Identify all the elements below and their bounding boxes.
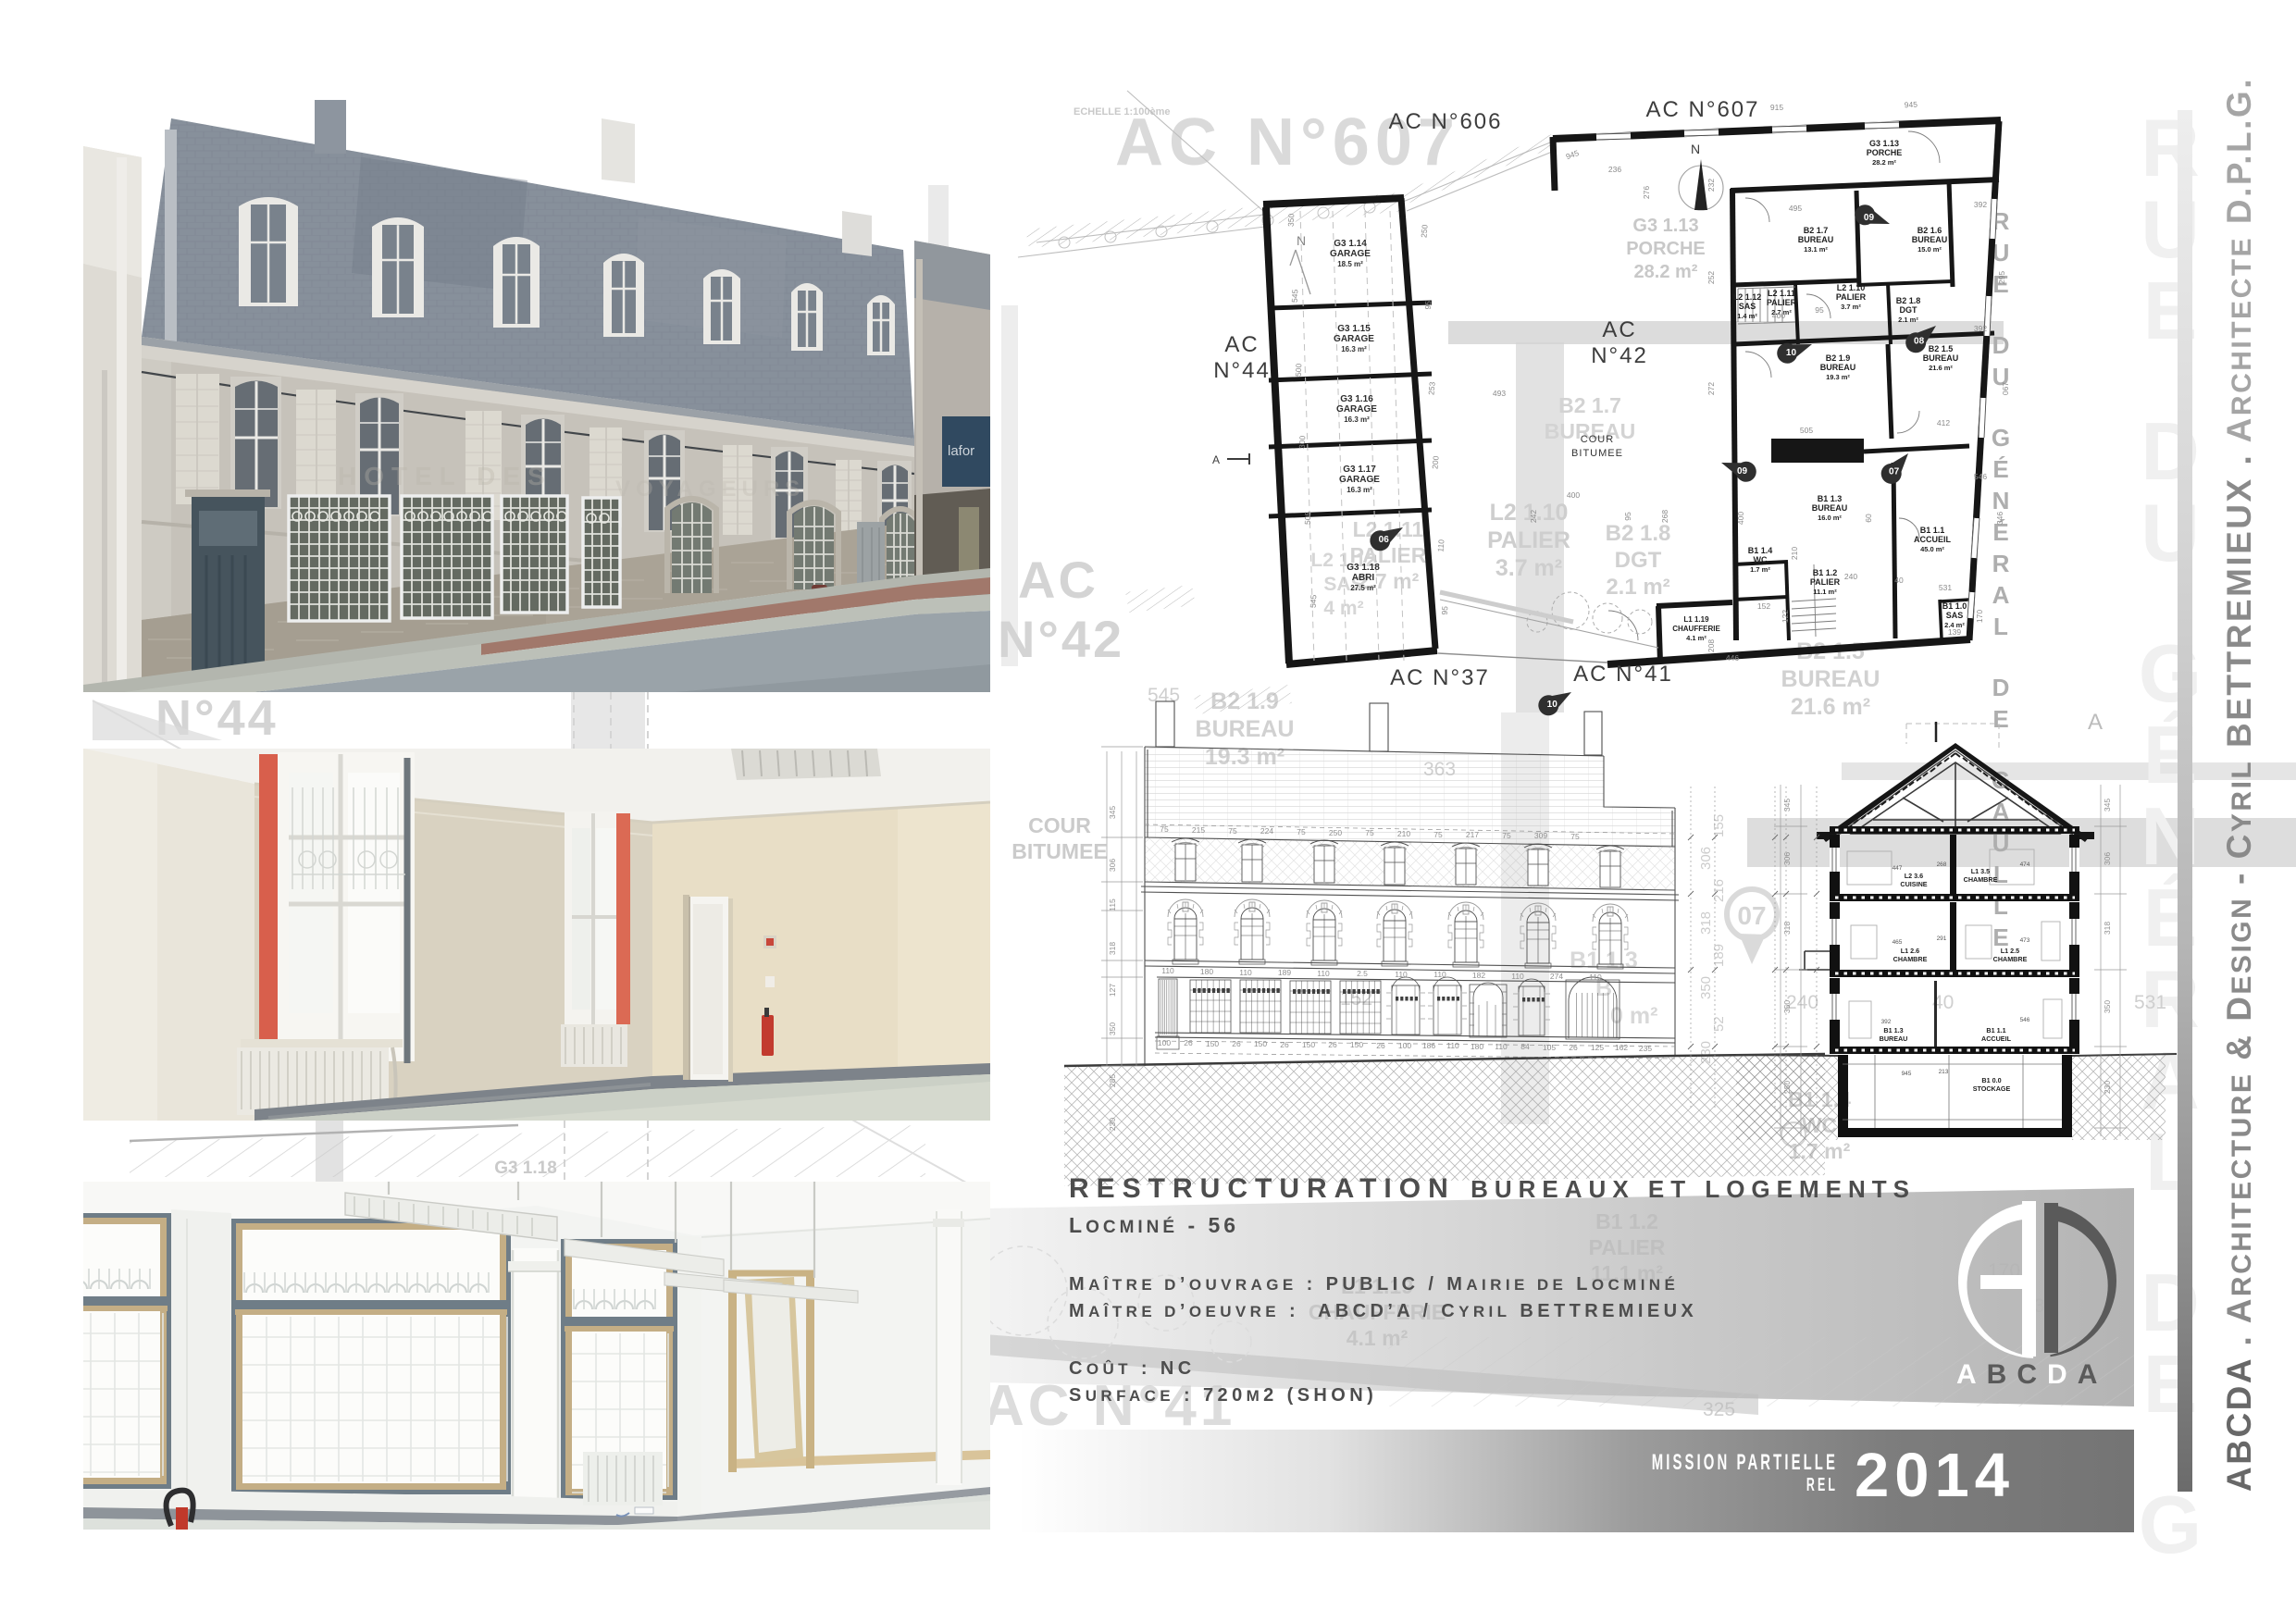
svg-text:3.7 m²: 3.7 m² [1841, 303, 1861, 311]
svg-text:AC N°37: AC N°37 [1390, 665, 1490, 690]
svg-text:A: A [2088, 710, 2103, 735]
svg-text:N: N [1691, 142, 1700, 156]
svg-text:CHAUFFERIE: CHAUFFERIE [1672, 625, 1720, 633]
svg-text:07: 07 [1889, 466, 1900, 477]
svg-text:L2 1.11: L2 1.11 [1768, 289, 1795, 298]
svg-text:CHAMBRE: CHAMBRE [1964, 875, 1998, 884]
svg-text:268: 268 [1937, 861, 1947, 868]
svg-text:276: 276 [1642, 186, 1651, 199]
svg-text:180: 180 [1200, 967, 1213, 976]
svg-text:G3 1.13: G3 1.13 [1632, 216, 1698, 236]
svg-text:13.1 m²: 13.1 m² [1804, 245, 1828, 254]
svg-text:L1 2.5: L1 2.5 [2001, 947, 2019, 955]
svg-text:274: 274 [1550, 972, 1563, 981]
svg-text:ABRI: ABRI [1352, 573, 1375, 583]
svg-text:75: 75 [1433, 830, 1443, 839]
svg-text:G3 1.14: G3 1.14 [1334, 239, 1367, 249]
svg-text:lafor: lafor [948, 443, 974, 459]
svg-text:A: A [1212, 453, 1220, 466]
svg-text:CHAMBRE: CHAMBRE [1993, 955, 2028, 963]
svg-text:10: 10 [1786, 348, 1797, 358]
svg-text:474: 474 [2020, 861, 2030, 868]
svg-text:250: 250 [1419, 224, 1429, 238]
svg-text:155: 155 [1711, 814, 1727, 837]
svg-text:224: 224 [1260, 826, 1273, 836]
svg-text:0 m²: 0 m² [1610, 1003, 1657, 1029]
svg-text:182: 182 [1472, 971, 1485, 980]
svg-text:75: 75 [1297, 827, 1306, 836]
svg-text:95: 95 [1623, 512, 1632, 521]
svg-text:210: 210 [1397, 829, 1410, 838]
svg-text:306: 306 [1698, 847, 1714, 870]
svg-text:100: 100 [1398, 1041, 1411, 1050]
svg-text:STOCKAGE: STOCKAGE [1973, 1084, 2011, 1093]
svg-text:189: 189 [1711, 944, 1727, 967]
svg-text:AC: AC [1224, 332, 1259, 357]
svg-text:84: 84 [1520, 1042, 1530, 1051]
svg-text:110: 110 [1435, 539, 1446, 552]
svg-text:306: 306 [1108, 859, 1117, 872]
svg-text:40: 40 [1894, 576, 1904, 585]
svg-text:PALIER: PALIER [1767, 298, 1797, 307]
svg-text:AC N°607: AC N°607 [1646, 97, 1760, 122]
svg-text:L2 1.12: L2 1.12 [1733, 292, 1762, 302]
svg-text:BUREAU: BUREAU [1923, 353, 1959, 363]
svg-text:493: 493 [1493, 389, 1506, 398]
svg-text:52: 52 [1711, 1016, 1727, 1032]
svg-text:242: 242 [1529, 510, 1538, 523]
svg-text:18.5 m²: 18.5 m² [1337, 260, 1363, 268]
svg-text:B1 1.1: B1 1.1 [1920, 526, 1945, 535]
svg-text:B2 1.9: B2 1.9 [1826, 353, 1851, 363]
svg-text:BUREAU: BUREAU [1196, 716, 1295, 742]
svg-text:PALIER: PALIER [1810, 577, 1841, 587]
svg-text:BUREAU: BUREAU [1912, 235, 1948, 244]
svg-text:505: 505 [1800, 426, 1813, 435]
svg-text:346: 346 [1995, 512, 2004, 525]
svg-text:16.0 m²: 16.0 m² [1818, 514, 1842, 522]
svg-text:B2 1.6: B2 1.6 [1917, 226, 1942, 235]
svg-text:110: 110 [1446, 1041, 1459, 1050]
svg-text:75: 75 [1228, 826, 1237, 836]
svg-text:B1 1.3: B1 1.3 [1818, 494, 1843, 503]
svg-text:505: 505 [1303, 511, 1313, 525]
svg-text:250: 250 [1329, 828, 1342, 837]
svg-text:B1 1.3: B1 1.3 [1570, 948, 1638, 973]
svg-text:B2 1.5: B2 1.5 [1929, 344, 1954, 353]
svg-text:G3 1.17: G3 1.17 [1343, 465, 1376, 475]
svg-text:232: 232 [1706, 179, 1716, 192]
svg-text:152: 152 [1757, 601, 1770, 611]
svg-text:95: 95 [1423, 300, 1433, 310]
svg-text:08: 08 [1914, 336, 1925, 346]
svg-text:B1 1.4: B1 1.4 [1748, 546, 1773, 555]
svg-text:BUREAU: BUREAU [1812, 503, 1848, 513]
svg-text:217: 217 [1466, 830, 1479, 839]
svg-text:400: 400 [1736, 512, 1745, 525]
svg-text:19.3 m²: 19.3 m² [1826, 373, 1850, 381]
svg-text:2.1 m²: 2.1 m² [1606, 575, 1669, 600]
svg-text:26: 26 [1232, 1039, 1241, 1048]
svg-text:306: 306 [2103, 852, 2112, 865]
svg-text:AC: AC [1602, 317, 1636, 342]
svg-text:B2 1.7: B2 1.7 [1558, 393, 1621, 417]
svg-text:291: 291 [1937, 935, 1947, 942]
svg-text:127: 127 [1108, 984, 1117, 997]
svg-text:400: 400 [1772, 311, 1785, 320]
svg-text:16.3 m²: 16.3 m² [1344, 415, 1370, 424]
svg-text:412: 412 [1937, 418, 1950, 427]
svg-text:236: 236 [1608, 165, 1621, 174]
svg-text:300: 300 [1297, 435, 1308, 449]
svg-text:B2 1.8: B2 1.8 [1606, 521, 1671, 546]
svg-text:531: 531 [1939, 583, 1952, 592]
svg-text:162: 162 [1615, 1043, 1628, 1052]
svg-text:150: 150 [1302, 1040, 1315, 1049]
svg-text:11.1 m²: 11.1 m² [1813, 588, 1837, 596]
svg-text:26: 26 [1280, 1040, 1289, 1049]
svg-text:125: 125 [1591, 1043, 1604, 1052]
svg-text:345: 345 [1782, 799, 1792, 811]
svg-text:ABCDA: ABCDA [1956, 1359, 2107, 1390]
svg-text:AC: AC [1018, 551, 1098, 609]
svg-text:27.5 m²: 27.5 m² [1350, 584, 1376, 592]
svg-text:09: 09 [1864, 213, 1875, 223]
svg-text:392: 392 [1974, 324, 1987, 333]
svg-text:945: 945 [1565, 148, 1581, 161]
svg-text:SAS: SAS [1946, 611, 1964, 620]
svg-text:B1 1.2: B1 1.2 [1813, 568, 1838, 577]
svg-text:G3 1.18: G3 1.18 [1347, 563, 1380, 573]
svg-text:L2 3.6: L2 3.6 [1905, 872, 1923, 880]
svg-text:350: 350 [1782, 1000, 1792, 1013]
svg-text:067: 067 [2001, 382, 2010, 395]
svg-text:GARAGE: GARAGE [1330, 249, 1371, 259]
svg-text:26: 26 [1184, 1038, 1193, 1047]
svg-text:BITUMEE: BITUMEE [1011, 839, 1108, 863]
svg-text:350: 350 [1698, 976, 1714, 999]
svg-text:D: D [1992, 674, 2010, 701]
svg-text:B1 1.0: B1 1.0 [1942, 601, 1967, 611]
svg-text:139: 139 [1948, 627, 1961, 637]
svg-text:350: 350 [1286, 213, 1297, 227]
svg-text:HOTEL DES: HOTEL DES [338, 462, 552, 490]
svg-text:110: 110 [1161, 966, 1174, 975]
svg-text:295: 295 [1997, 271, 2006, 284]
svg-text:16.3 m²: 16.3 m² [1347, 486, 1372, 494]
svg-text:A: A [1992, 581, 2010, 609]
svg-text:N°42: N°42 [998, 610, 1124, 668]
svg-text:21.6 m²: 21.6 m² [1791, 694, 1870, 720]
svg-text:GARAGE: GARAGE [1334, 334, 1374, 344]
svg-text:240: 240 [1844, 572, 1857, 581]
svg-text:GARAGE: GARAGE [1339, 475, 1380, 485]
svg-text:400: 400 [1567, 490, 1580, 500]
svg-text:210: 210 [1790, 547, 1799, 560]
svg-text:AC N°41: AC N°41 [1573, 662, 1673, 687]
svg-text:150: 150 [1350, 1040, 1363, 1049]
svg-text:L1 2.6: L1 2.6 [1901, 947, 1919, 955]
svg-text:268: 268 [1660, 510, 1669, 523]
svg-text:G: G [1992, 424, 2010, 452]
svg-text:PALIER: PALIER [1487, 527, 1570, 553]
svg-text:110: 110 [1239, 968, 1252, 977]
svg-text:306: 306 [1782, 852, 1792, 865]
svg-text:110: 110 [1589, 973, 1602, 982]
svg-text:100: 100 [1158, 1038, 1171, 1047]
svg-text:531: 531 [2134, 992, 2166, 1013]
svg-text:546: 546 [2020, 1017, 2030, 1023]
svg-text:BUREAU: BUREAU [1798, 235, 1834, 244]
svg-text:L1 1.19: L1 1.19 [1683, 615, 1709, 624]
svg-text:230: 230 [1782, 1081, 1792, 1094]
svg-text:GARAGE: GARAGE [1336, 404, 1377, 415]
svg-text:28.2 m²: 28.2 m² [1872, 158, 1896, 167]
svg-text:4.1 m²: 4.1 m² [1686, 634, 1706, 642]
svg-text:BUREAU: BUREAU [1820, 363, 1856, 372]
svg-text:B2 1.7: B2 1.7 [1804, 226, 1829, 235]
svg-text:235: 235 [1639, 1044, 1652, 1053]
svg-text:110: 110 [1317, 969, 1330, 978]
svg-text:E: E [1992, 705, 2008, 733]
svg-text:1.7 m²: 1.7 m² [1750, 565, 1770, 574]
svg-text:189: 189 [1278, 968, 1291, 977]
svg-text:200: 200 [1430, 455, 1440, 469]
svg-text:B1 1.1: B1 1.1 [1986, 1026, 2005, 1035]
svg-text:ACCUEIL: ACCUEIL [1981, 1035, 2012, 1043]
svg-text:95: 95 [1440, 605, 1450, 615]
svg-text:215: 215 [1192, 825, 1205, 835]
svg-text:PALIER: PALIER [1836, 292, 1867, 302]
svg-text:150: 150 [1254, 1039, 1267, 1048]
svg-text:16.3 m²: 16.3 m² [1341, 345, 1367, 353]
svg-text:318: 318 [1782, 922, 1792, 935]
svg-text:75: 75 [1570, 832, 1580, 841]
svg-text:216: 216 [1711, 879, 1727, 902]
svg-text:272: 272 [1706, 382, 1716, 395]
svg-text:B2 1.8: B2 1.8 [1896, 296, 1921, 305]
svg-text:06: 06 [1379, 535, 1390, 545]
svg-text:3.7 m²: 3.7 m² [1496, 555, 1562, 581]
svg-text:PORCHE: PORCHE [1867, 148, 1903, 157]
svg-text:28.2 m²: 28.2 m² [1634, 262, 1698, 282]
svg-text:4 m²: 4 m² [1323, 598, 1363, 619]
svg-text:26: 26 [1569, 1043, 1578, 1052]
svg-text:BUREAU: BUREAU [1880, 1035, 1908, 1043]
svg-text:COUR: COUR [1581, 434, 1614, 445]
svg-text:495: 495 [1789, 204, 1802, 213]
svg-text:N: N [1992, 487, 2010, 514]
svg-text:É: É [1992, 455, 2008, 483]
svg-text:545: 545 [1309, 594, 1319, 608]
svg-text:L: L [1993, 613, 2008, 640]
svg-text:BITUMEE: BITUMEE [1571, 448, 1623, 459]
svg-text:318: 318 [1698, 911, 1714, 935]
svg-text:10: 10 [1547, 700, 1558, 710]
svg-text:G: G [2139, 1479, 2202, 1570]
svg-text:110: 110 [1395, 970, 1408, 979]
svg-text:ACCUEIL: ACCUEIL [1914, 535, 1952, 544]
svg-text:L1 3.5: L1 3.5 [1971, 867, 1990, 875]
svg-text:110: 110 [1511, 972, 1524, 981]
svg-text:350: 350 [2103, 1000, 2112, 1013]
svg-text:N°42: N°42 [1591, 343, 1648, 368]
svg-text:915: 915 [1770, 103, 1783, 112]
svg-text:545: 545 [1290, 289, 1300, 303]
svg-text:170: 170 [1975, 610, 1984, 623]
svg-text:253: 253 [1426, 381, 1436, 395]
svg-text:208: 208 [1706, 639, 1716, 652]
svg-text:60: 60 [1864, 514, 1873, 523]
svg-text:VOYAGEURS: VOYAGEURS [615, 477, 805, 502]
svg-text:545: 545 [1148, 685, 1180, 706]
svg-text:122: 122 [1781, 610, 1790, 623]
svg-text:1.4 m²: 1.4 m² [1737, 312, 1757, 320]
svg-text:95: 95 [1815, 305, 1824, 315]
svg-text:213: 213 [1939, 1069, 1949, 1075]
svg-text:110: 110 [1495, 1042, 1508, 1051]
svg-text:2.5: 2.5 [1357, 969, 1368, 978]
svg-text:R: R [1992, 550, 2010, 577]
svg-text:465: 465 [1893, 939, 1903, 946]
svg-text:318: 318 [1108, 942, 1117, 955]
svg-text:345: 345 [1108, 806, 1117, 819]
svg-text:345: 345 [2103, 799, 2112, 811]
svg-text:2.1 m²: 2.1 m² [1898, 316, 1918, 324]
svg-text:45.0 m²: 45.0 m² [1920, 545, 1944, 553]
svg-text:21.6 m²: 21.6 m² [1929, 364, 1953, 372]
svg-text:L: L [1993, 861, 2008, 888]
svg-text:115: 115 [1108, 898, 1117, 911]
svg-text:75: 75 [1160, 824, 1169, 834]
svg-text:75: 75 [1365, 828, 1374, 837]
svg-text:B1 0.0: B1 0.0 [1981, 1076, 2001, 1084]
svg-text:180: 180 [1471, 1042, 1483, 1051]
svg-text:SAS: SAS [1739, 302, 1756, 311]
svg-text:N°44: N°44 [1213, 358, 1271, 383]
svg-text:447: 447 [1893, 865, 1903, 872]
svg-text:DGT: DGT [1615, 548, 1662, 573]
svg-text:26: 26 [1376, 1041, 1385, 1050]
svg-text:230: 230 [1108, 1118, 1117, 1131]
svg-text:G3 1.13: G3 1.13 [1869, 139, 1899, 148]
svg-text:AC N°606: AC N°606 [1389, 109, 1503, 134]
svg-text:L2 1.10: L2 1.10 [1837, 283, 1866, 292]
svg-text:COUR: COUR [1028, 813, 1091, 837]
svg-text:B1 1.3: B1 1.3 [1883, 1026, 1903, 1035]
svg-text:150: 150 [1206, 1039, 1219, 1048]
svg-text:252: 252 [1706, 271, 1716, 284]
svg-text:105: 105 [1543, 1043, 1556, 1052]
svg-text:309: 309 [1534, 831, 1547, 840]
svg-text:285: 285 [1108, 1074, 1117, 1087]
svg-text:186: 186 [1422, 1041, 1435, 1050]
svg-text:PORCHE: PORCHE [1626, 239, 1706, 259]
svg-text:N: N [1297, 233, 1306, 248]
svg-text:D: D [1992, 331, 2010, 359]
svg-text:CUISINE: CUISINE [1900, 880, 1927, 888]
svg-text:230: 230 [2103, 1081, 2112, 1094]
svg-text:110: 110 [1433, 970, 1446, 979]
svg-text:G3 1.15: G3 1.15 [1337, 324, 1371, 334]
svg-text:318: 318 [2103, 922, 2112, 935]
svg-text:15.0 m²: 15.0 m² [1917, 245, 1942, 254]
svg-text:546: 546 [1974, 472, 1987, 481]
svg-text:DGT: DGT [1900, 305, 1918, 315]
svg-text:392: 392 [1881, 1019, 1892, 1025]
svg-text:350: 350 [1108, 1022, 1117, 1035]
svg-text:446: 446 [1726, 653, 1739, 663]
svg-text:945: 945 [1904, 100, 1917, 110]
svg-text:09: 09 [1737, 466, 1748, 477]
svg-text:75: 75 [1502, 831, 1511, 840]
svg-text:CHAMBRE: CHAMBRE [1893, 955, 1928, 963]
svg-text:500: 500 [1294, 363, 1304, 377]
svg-text:392: 392 [1974, 200, 1987, 209]
svg-text:473: 473 [2020, 937, 2030, 944]
svg-text:26: 26 [1328, 1040, 1337, 1049]
svg-text:WC: WC [1754, 555, 1768, 564]
svg-text:07: 07 [1737, 901, 1766, 930]
svg-text:945: 945 [1902, 1071, 1912, 1077]
svg-text:G3 1.16: G3 1.16 [1340, 394, 1373, 404]
svg-text:BUREAU: BUREAU [1781, 666, 1880, 692]
